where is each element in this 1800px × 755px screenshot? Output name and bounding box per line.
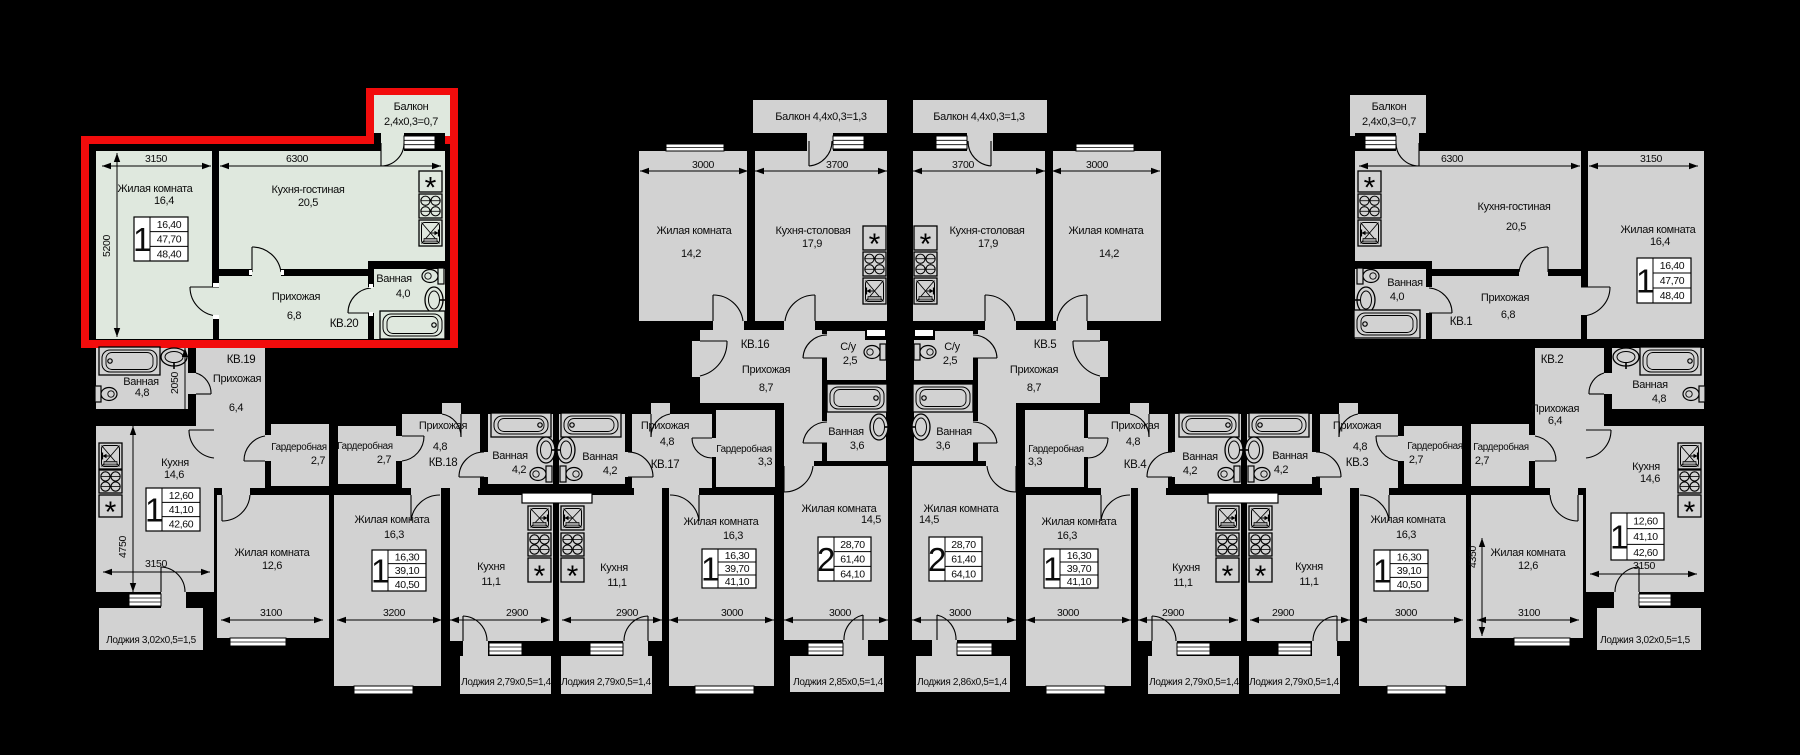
svg-text:3000: 3000 (692, 159, 714, 171)
svg-text:3,6: 3,6 (936, 440, 950, 452)
svg-text:Прихожая: Прихожая (641, 420, 690, 432)
svg-text:*: * (1255, 560, 1267, 593)
svg-text:39,70: 39,70 (725, 563, 750, 575)
svg-text:Ванная: Ванная (1182, 451, 1218, 463)
svg-text:47,70: 47,70 (1660, 275, 1685, 287)
svg-text:Балкон: Балкон (1372, 101, 1407, 113)
svg-text:14,6: 14,6 (164, 469, 184, 481)
svg-text:39,10: 39,10 (395, 565, 420, 577)
svg-text:3100: 3100 (1518, 607, 1540, 619)
svg-text:2: 2 (928, 541, 946, 578)
svg-text:КВ.18: КВ.18 (429, 457, 458, 469)
svg-text:Ванная: Ванная (582, 451, 618, 463)
svg-text:Прихожая: Прихожая (1531, 403, 1580, 415)
svg-text:Прихожая: Прихожая (1111, 420, 1160, 432)
svg-text:14,2: 14,2 (681, 248, 701, 260)
svg-text:Балкон: Балкон (394, 101, 429, 113)
svg-text:39,70: 39,70 (1067, 563, 1092, 575)
svg-text:3150: 3150 (145, 558, 167, 570)
svg-text:Кухня-гостиная: Кухня-гостиная (272, 184, 345, 196)
svg-text:41,10: 41,10 (169, 504, 194, 516)
svg-text:2,7: 2,7 (1409, 454, 1423, 466)
svg-text:3000: 3000 (1395, 607, 1417, 619)
svg-text:2050: 2050 (169, 372, 181, 394)
svg-text:3150: 3150 (1640, 153, 1662, 165)
svg-text:4,0: 4,0 (1390, 291, 1404, 303)
svg-text:Ванная: Ванная (1387, 277, 1423, 289)
svg-text:Лоджия 2,79х0,5=1,4: Лоджия 2,79х0,5=1,4 (1149, 677, 1239, 688)
svg-text:Ванная: Ванная (1272, 450, 1308, 462)
svg-text:14,5: 14,5 (861, 514, 881, 526)
svg-text:41,10: 41,10 (1067, 576, 1092, 588)
svg-text:Кухня: Кухня (1295, 561, 1323, 573)
svg-text:6,4: 6,4 (229, 402, 243, 414)
svg-text:2,7: 2,7 (1475, 455, 1489, 467)
svg-text:КВ.19: КВ.19 (227, 354, 256, 366)
svg-text:КВ.5: КВ.5 (1034, 339, 1057, 351)
svg-text:28,70: 28,70 (951, 539, 976, 551)
svg-text:28,70: 28,70 (840, 539, 865, 551)
svg-text:11,1: 11,1 (607, 577, 626, 589)
svg-text:3700: 3700 (826, 159, 848, 171)
svg-text:3000: 3000 (721, 607, 743, 619)
svg-text:3000: 3000 (949, 607, 971, 619)
svg-text:Прихожая: Прихожая (419, 420, 468, 432)
svg-text:Ванная: Ванная (492, 450, 528, 462)
svg-text:42,60: 42,60 (1633, 547, 1658, 559)
svg-text:Ванная: Ванная (376, 273, 412, 285)
svg-text:47,70: 47,70 (157, 234, 182, 246)
svg-text:Жилая комната: Жилая комната (1491, 547, 1567, 559)
svg-text:КВ.3: КВ.3 (1346, 457, 1369, 469)
svg-text:3,3: 3,3 (1028, 456, 1042, 468)
svg-text:16,30: 16,30 (725, 550, 750, 562)
svg-text:4,8: 4,8 (660, 436, 674, 448)
svg-text:20,5: 20,5 (1506, 221, 1526, 233)
svg-text:16,40: 16,40 (1660, 260, 1685, 272)
svg-text:2,5: 2,5 (943, 355, 957, 367)
svg-text:*: * (1684, 496, 1696, 529)
svg-text:КВ.20: КВ.20 (330, 318, 359, 330)
svg-text:Жилая комната: Жилая комната (684, 516, 760, 528)
svg-text:11,1: 11,1 (481, 576, 500, 588)
svg-text:2,4х0,3=0,7: 2,4х0,3=0,7 (1362, 116, 1416, 128)
svg-text:40,50: 40,50 (1397, 579, 1422, 591)
svg-text:Кухня-столовая: Кухня-столовая (950, 225, 1025, 237)
svg-text:Жилая комната: Жилая комната (657, 225, 733, 237)
svg-text:16,30: 16,30 (1397, 551, 1422, 563)
svg-text:*: * (567, 560, 579, 593)
svg-text:14,2: 14,2 (1099, 248, 1119, 260)
svg-text:3000: 3000 (829, 607, 851, 619)
svg-text:Прихожая: Прихожая (1010, 364, 1059, 376)
svg-text:3100: 3100 (260, 607, 282, 619)
svg-text:КВ.17: КВ.17 (651, 459, 680, 471)
svg-text:12,6: 12,6 (1518, 560, 1538, 572)
svg-text:41,10: 41,10 (725, 576, 750, 588)
svg-text:4,8: 4,8 (433, 441, 447, 453)
svg-text:1: 1 (1636, 263, 1654, 300)
svg-text:16,4: 16,4 (1650, 236, 1670, 248)
svg-text:2,4х0,3=0,7: 2,4х0,3=0,7 (384, 116, 438, 128)
svg-text:16,40: 16,40 (157, 219, 182, 231)
svg-text:Кухня-столовая: Кухня-столовая (776, 225, 851, 237)
svg-text:Жилая комната: Жилая комната (235, 547, 311, 559)
svg-text:12,60: 12,60 (1633, 515, 1658, 527)
svg-text:16,4: 16,4 (154, 195, 174, 207)
svg-text:12,6: 12,6 (262, 560, 282, 572)
svg-text:6300: 6300 (1441, 153, 1463, 165)
svg-text:2,7: 2,7 (377, 454, 391, 466)
svg-text:14,5: 14,5 (919, 514, 939, 526)
svg-text:Гардеробная: Гардеробная (716, 444, 771, 455)
svg-text:Кухня: Кухня (1172, 562, 1200, 574)
svg-text:48,40: 48,40 (1660, 290, 1685, 302)
svg-text:2,7: 2,7 (311, 455, 325, 467)
svg-text:3200: 3200 (383, 607, 405, 619)
svg-text:Кухня: Кухня (1632, 461, 1660, 473)
svg-text:Балкон 4,4х0,3=1,3: Балкон 4,4х0,3=1,3 (933, 111, 1025, 123)
svg-text:Кухня: Кухня (477, 561, 505, 573)
svg-text:2900: 2900 (506, 607, 528, 619)
svg-text:39,10: 39,10 (1397, 565, 1422, 577)
svg-text:12,60: 12,60 (169, 490, 194, 502)
svg-text:17,9: 17,9 (802, 238, 822, 250)
svg-text:Прихожая: Прихожая (213, 373, 262, 385)
svg-text:3700: 3700 (952, 159, 974, 171)
svg-text:Лоджия 2,85х0,5=1,4: Лоджия 2,85х0,5=1,4 (793, 677, 883, 688)
svg-text:Жилая комната: Жилая комната (1371, 514, 1447, 526)
svg-text:Жилая комната: Жилая комната (355, 514, 431, 526)
svg-text:4,2: 4,2 (603, 465, 617, 477)
svg-text:3,3: 3,3 (758, 456, 772, 468)
svg-text:Ванная: Ванная (936, 426, 972, 438)
svg-text:4,2: 4,2 (1274, 464, 1288, 476)
svg-text:8,7: 8,7 (1027, 382, 1041, 394)
svg-text:Гардеробная: Гардеробная (1473, 442, 1528, 453)
svg-text:16,3: 16,3 (384, 529, 404, 541)
svg-text:Ванная: Ванная (828, 426, 864, 438)
svg-text:3,6: 3,6 (850, 440, 864, 452)
svg-text:1: 1 (1610, 519, 1628, 556)
svg-text:6300: 6300 (286, 153, 308, 165)
svg-text:61,40: 61,40 (840, 554, 865, 566)
svg-text:16,30: 16,30 (1067, 550, 1092, 562)
svg-text:Лоджия 2,79х0,5=1,4: Лоджия 2,79х0,5=1,4 (1249, 677, 1339, 688)
svg-text:4750: 4750 (117, 536, 129, 558)
svg-text:С/у: С/у (944, 341, 960, 353)
svg-text:Прихожая: Прихожая (742, 364, 791, 376)
svg-text:16,3: 16,3 (723, 530, 743, 542)
svg-text:1: 1 (1373, 553, 1391, 590)
svg-text:КВ.4: КВ.4 (1124, 459, 1148, 471)
svg-text:64,10: 64,10 (951, 568, 976, 580)
svg-text:1: 1 (133, 221, 151, 258)
svg-text:4,8: 4,8 (1353, 441, 1367, 453)
svg-text:4,8: 4,8 (1652, 393, 1666, 405)
svg-text:3150: 3150 (145, 153, 167, 165)
svg-text:41,10: 41,10 (1633, 531, 1658, 543)
svg-text:3150: 3150 (1633, 560, 1655, 572)
svg-text:КВ.1: КВ.1 (1450, 316, 1473, 328)
svg-text:16,3: 16,3 (1057, 530, 1077, 542)
svg-text:2,5: 2,5 (843, 355, 857, 367)
svg-text:Лоджия 2,86х0,5=1,4: Лоджия 2,86х0,5=1,4 (917, 677, 1007, 688)
svg-text:Лоджия 3,02х0,5=1,5: Лоджия 3,02х0,5=1,5 (106, 635, 196, 646)
svg-text:КВ.16: КВ.16 (741, 339, 770, 351)
svg-text:Ванная: Ванная (1632, 379, 1668, 391)
svg-text:1: 1 (1043, 551, 1061, 588)
svg-text:3000: 3000 (1086, 159, 1108, 171)
svg-text:2900: 2900 (616, 607, 638, 619)
svg-text:Прихожая: Прихожая (272, 291, 321, 303)
svg-text:*: * (534, 560, 546, 593)
svg-text:КВ.2: КВ.2 (1541, 354, 1564, 366)
svg-text:Прихожая: Прихожая (1333, 420, 1382, 432)
svg-text:6,8: 6,8 (1501, 309, 1515, 321)
svg-text:20,5: 20,5 (298, 197, 318, 209)
svg-text:3000: 3000 (1057, 607, 1079, 619)
svg-text:Гардеробная: Гардеробная (1028, 444, 1083, 455)
svg-text:С/у: С/у (840, 341, 856, 353)
svg-text:Лоджия 2,79х0,5=1,4: Лоджия 2,79х0,5=1,4 (461, 677, 551, 688)
svg-text:1: 1 (371, 553, 389, 590)
svg-text:Жилая комната: Жилая комната (1621, 224, 1697, 236)
svg-text:Кухня: Кухня (600, 562, 628, 574)
svg-text:61,40: 61,40 (951, 554, 976, 566)
svg-text:1: 1 (701, 551, 719, 588)
svg-text:14,6: 14,6 (1640, 473, 1660, 485)
svg-text:Балкон 4,4х0,3=1,3: Балкон 4,4х0,3=1,3 (775, 111, 867, 123)
svg-text:Жилая комната: Жилая комната (1042, 516, 1118, 528)
svg-text:4,8: 4,8 (1126, 436, 1140, 448)
svg-text:16,30: 16,30 (395, 551, 420, 563)
svg-text:11,1: 11,1 (1173, 577, 1192, 589)
svg-text:Жилая комната: Жилая комната (1069, 225, 1145, 237)
svg-text:64,10: 64,10 (840, 568, 865, 580)
svg-text:5200: 5200 (101, 235, 113, 257)
svg-text:2900: 2900 (1162, 607, 1184, 619)
svg-text:4,8: 4,8 (135, 387, 149, 399)
svg-text:8,7: 8,7 (759, 382, 773, 394)
svg-text:6,8: 6,8 (287, 310, 301, 322)
svg-text:4,2: 4,2 (1183, 465, 1197, 477)
svg-text:4,2: 4,2 (512, 464, 526, 476)
svg-text:6,4: 6,4 (1548, 415, 1562, 427)
svg-text:4,0: 4,0 (396, 288, 410, 300)
svg-text:Гардеробная: Гардеробная (271, 442, 326, 453)
svg-text:42,60: 42,60 (169, 518, 194, 530)
svg-text:48,40: 48,40 (157, 248, 182, 260)
svg-text:Жилая комната: Жилая комната (118, 183, 194, 195)
svg-text:40,50: 40,50 (395, 579, 420, 591)
svg-text:Кухня: Кухня (161, 457, 189, 469)
svg-text:4350: 4350 (1467, 546, 1479, 568)
svg-text:17,9: 17,9 (978, 238, 998, 250)
svg-text:1: 1 (145, 492, 163, 529)
svg-text:Гардеробная: Гардеробная (337, 441, 392, 452)
svg-text:11,1: 11,1 (1299, 576, 1318, 588)
svg-text:2900: 2900 (1272, 607, 1294, 619)
svg-text:Прихожая: Прихожая (1481, 292, 1530, 304)
svg-text:Кухня-гостиная: Кухня-гостиная (1478, 201, 1551, 213)
svg-text:Лоджия 2,79х0,5=1,4: Лоджия 2,79х0,5=1,4 (561, 677, 651, 688)
svg-text:Лоджия 3,02х0,5=1,5: Лоджия 3,02х0,5=1,5 (1600, 635, 1690, 646)
svg-text:*: * (1222, 560, 1234, 593)
svg-text:2: 2 (817, 541, 835, 578)
svg-text:Гардеробная: Гардеробная (1407, 441, 1462, 452)
svg-text:*: * (105, 496, 117, 529)
svg-text:16,3: 16,3 (1396, 529, 1416, 541)
